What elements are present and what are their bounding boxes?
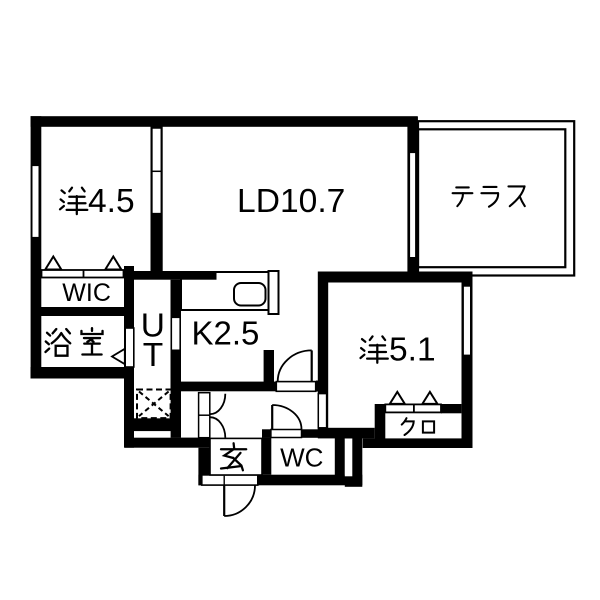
svg-text:5.1: 5.1: [389, 332, 436, 369]
svg-text:WIC: WIC: [62, 279, 111, 307]
svg-text:T: T: [143, 337, 163, 374]
svg-text:WC: WC: [280, 442, 323, 472]
svg-text:LD10.7: LD10.7: [237, 183, 345, 220]
svg-text:4.5: 4.5: [88, 183, 135, 220]
svg-text:K2.5: K2.5: [191, 314, 259, 351]
